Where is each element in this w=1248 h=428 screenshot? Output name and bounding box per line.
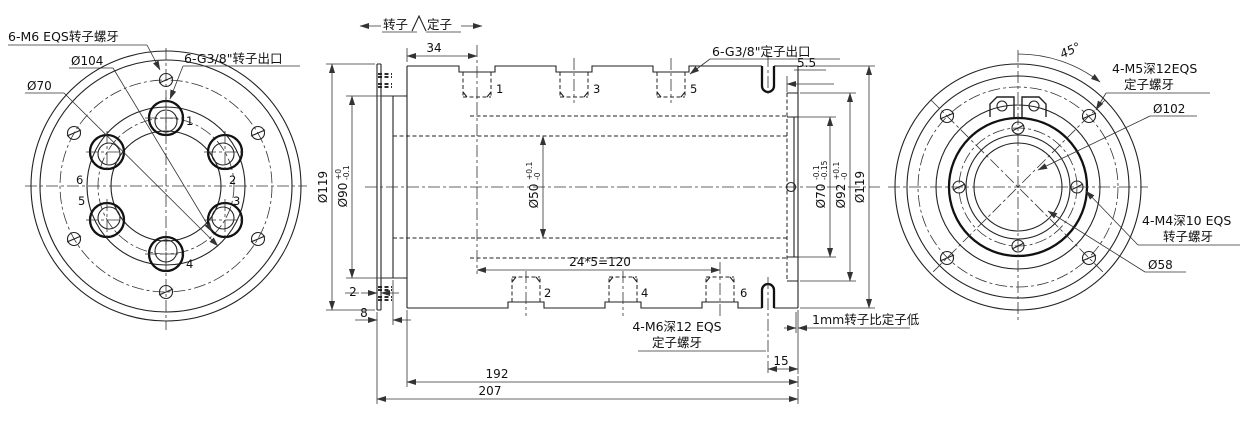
svg-text:-0.1: -0.1 <box>342 165 351 180</box>
note-offset: 1mm转子比定子低 <box>812 312 920 327</box>
dia-50-text: Ø50 +0.1 -0 <box>525 162 542 209</box>
svg-text:Ø90: Ø90 <box>336 183 350 208</box>
dia-70-label: Ø70 <box>27 79 52 93</box>
angle-45-arc <box>1018 54 1100 82</box>
section-view: 1 3 5 2 4 6 转子 定子 34 5.5 2 8 <box>316 16 920 404</box>
dim-192: 192 <box>486 367 509 381</box>
note-g38-rotor-outlet: 6-G3/8"转子出口 <box>184 51 282 66</box>
note-m4-line2: 转子螺牙 <box>1163 229 1213 244</box>
dia-70R-text: Ø70 -0.1 -0.15 <box>812 160 829 208</box>
left-view-centerlines <box>25 48 307 330</box>
port-number-4: 4 <box>186 257 193 271</box>
svg-text:Ø92: Ø92 <box>834 184 848 209</box>
dim-pitch: 24*5=120 <box>569 255 631 269</box>
barrel-bottom-line <box>407 302 798 308</box>
port-number-3: 3 <box>233 194 240 208</box>
dia-119L-text: Ø119 <box>316 171 330 203</box>
port-number-1: 1 <box>186 114 193 128</box>
hole-number-4: 4 <box>641 286 648 300</box>
note-m5-line2: 定子螺牙 <box>1124 77 1174 92</box>
cad-drawing-svg: 1 2 3 4 5 6 6-M6 EQS转子螺牙 Ø104 Ø70 6-G3/8… <box>0 0 1248 428</box>
dim-8: 8 <box>360 306 368 320</box>
svg-text:Ø119: Ø119 <box>316 171 330 203</box>
hole-number-2: 2 <box>544 286 551 300</box>
dia-119R-text: Ø119 <box>853 171 867 203</box>
hole-number-1: 1 <box>496 82 503 96</box>
rotor-label: 转子 <box>383 17 408 32</box>
dim-2: 2 <box>349 285 357 299</box>
note-stator-outlet: 6-G3/8"定子出口 <box>712 44 810 59</box>
svg-text:Ø70: Ø70 <box>814 184 828 209</box>
left-view: 1 2 3 4 5 6 6-M6 EQS转子螺牙 Ø104 Ø70 6-G3/8… <box>8 29 307 330</box>
note-m6-stator-line1: 4-M6深12 EQS <box>632 319 721 334</box>
rotor-stator-marker: 转子 定子 <box>360 16 482 32</box>
hole-number-6: 6 <box>740 286 747 300</box>
note-m4-line1: 4-M4深10 EQS <box>1142 213 1231 228</box>
svg-text:Ø50: Ø50 <box>527 184 541 209</box>
right-view-centerlines <box>888 50 1148 320</box>
right-view: 45° 4-M5深12EQS 定子螺牙 Ø102 4-M4深10 EQS 转子螺… <box>888 40 1240 320</box>
dim-34: 34 <box>426 41 441 55</box>
hole-number-3: 3 <box>593 82 600 96</box>
note-m6-leader <box>147 45 160 70</box>
svg-text:45°: 45° <box>1058 40 1083 62</box>
angle-45-text: 45° <box>1058 40 1083 62</box>
dia-90-text: Ø90 +0 -0.1 <box>334 165 351 207</box>
port-number-2: 2 <box>229 173 236 187</box>
dia-58-label: Ø58 <box>1148 258 1173 272</box>
dia-104-leader <box>113 68 212 232</box>
barrel-top-line <box>407 66 798 72</box>
note-m6-rotor-threads: 6-M6 EQS转子螺牙 <box>8 29 119 44</box>
dim-192-ext <box>407 310 798 387</box>
dia-70-leader <box>64 93 218 246</box>
dia-92-text: Ø92 +0.1 -0 <box>832 162 849 209</box>
cad-drawing-page: 1 2 3 4 5 6 6-M6 EQS转子螺牙 Ø104 Ø70 6-G3/8… <box>0 0 1248 428</box>
dim-207: 207 <box>479 384 502 398</box>
note-m6-stator-line2: 定子螺牙 <box>652 335 702 350</box>
stator-label: 定子 <box>427 17 452 32</box>
svg-text:-0: -0 <box>840 172 849 180</box>
dia-104-label: Ø104 <box>71 54 103 68</box>
svg-text:-0.15: -0.15 <box>820 160 829 180</box>
dim-15: 15 <box>773 354 788 368</box>
dia-58-leader <box>1048 211 1145 272</box>
port-number-6: 6 <box>76 173 83 187</box>
svg-text:-0: -0 <box>533 172 542 180</box>
port-number-5: 5 <box>78 194 85 208</box>
dim-207-ext <box>377 312 798 404</box>
svg-text:Ø119: Ø119 <box>853 171 867 203</box>
hole-number-5: 5 <box>690 82 697 96</box>
dia-102-label: Ø102 <box>1153 102 1185 116</box>
note-m5-line1: 4-M5深12EQS <box>1112 61 1197 76</box>
